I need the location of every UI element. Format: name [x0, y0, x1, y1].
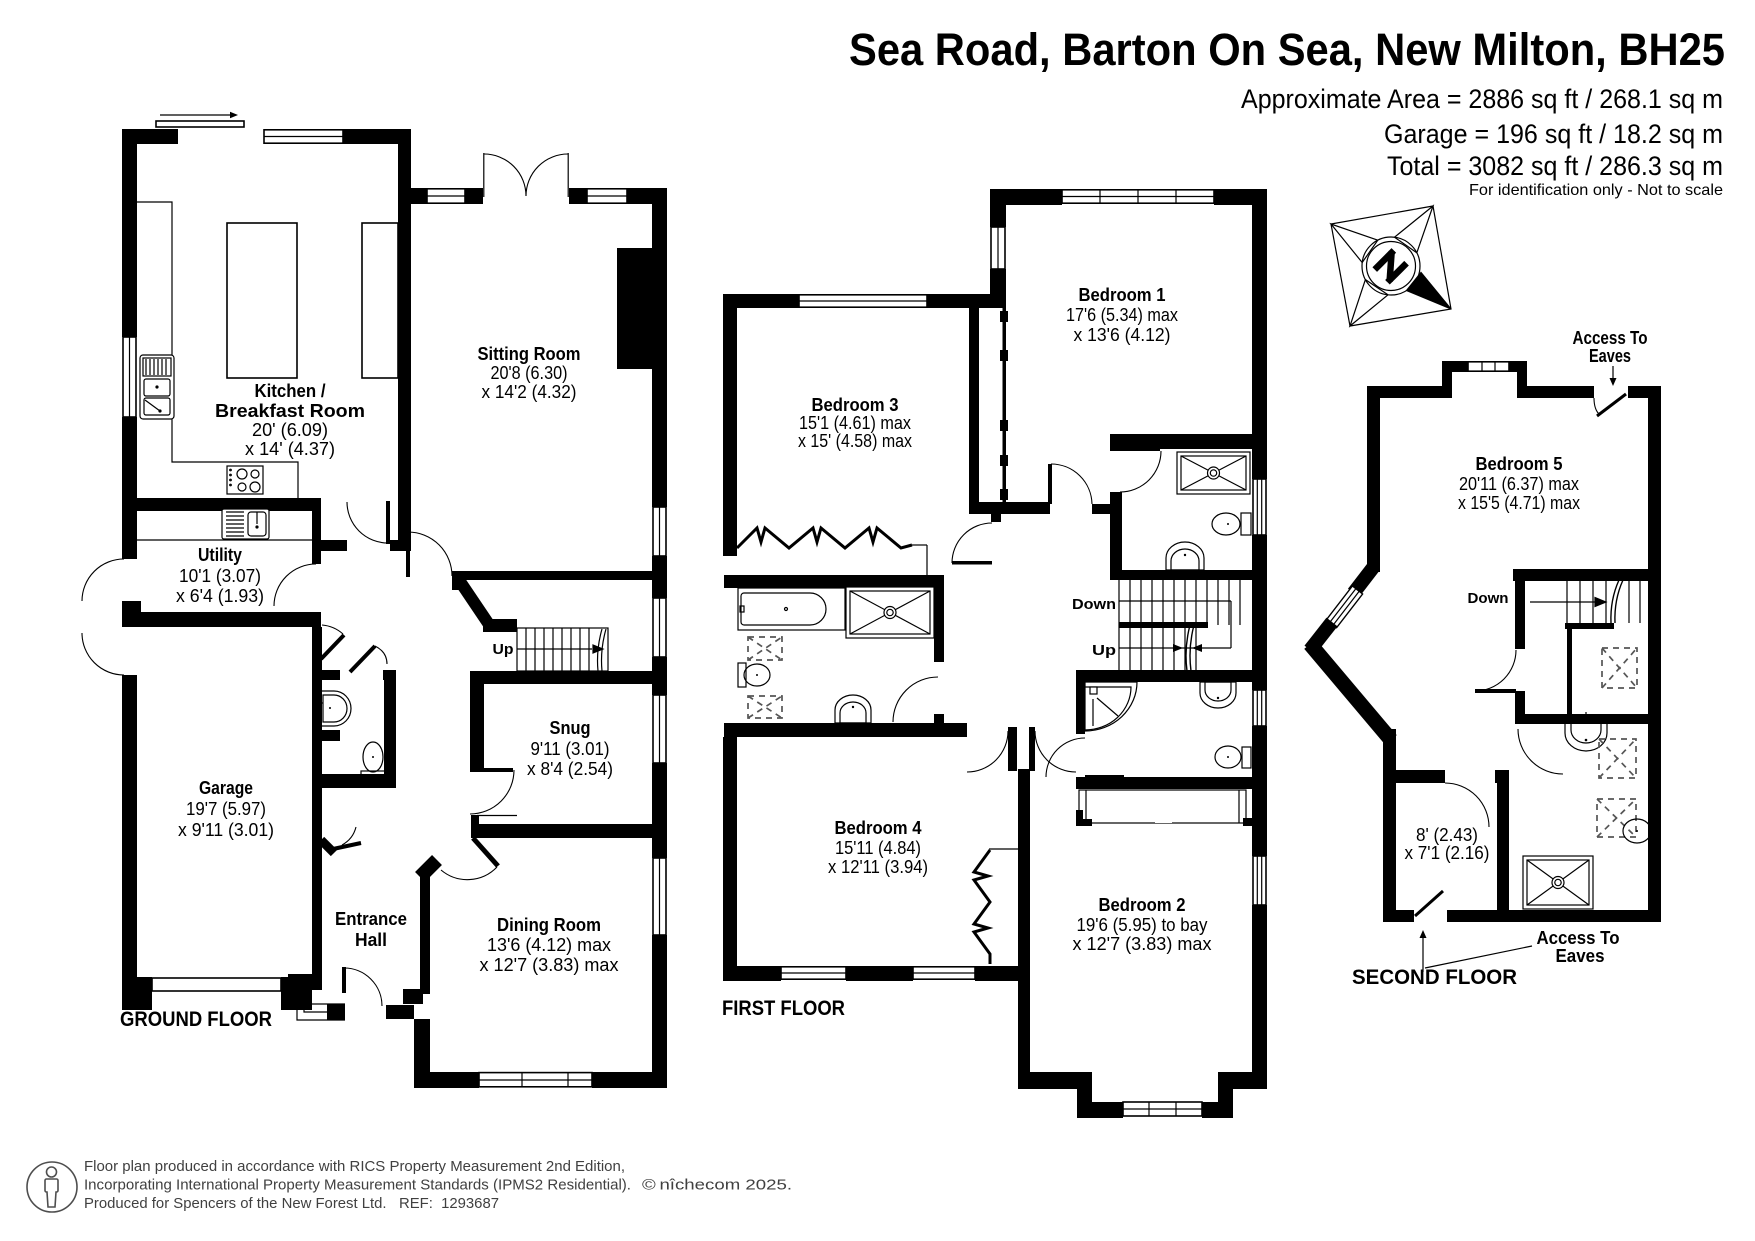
svg-text:Down: Down [1072, 596, 1116, 613]
svg-text:9'11 (3.01): 9'11 (3.01) [531, 739, 610, 759]
svg-text:17'6 (5.34) max: 17'6 (5.34) max [1066, 305, 1178, 325]
svg-text:Up: Up [493, 641, 514, 658]
svg-text:Garage = 196 sq ft / 18.2 sq m: Garage = 196 sq ft / 18.2 sq m [1384, 119, 1723, 149]
svg-text:x 6'4 (1.93): x 6'4 (1.93) [176, 586, 264, 606]
svg-text:Floor plan produced in accorda: Floor plan produced in accordance with R… [84, 1158, 625, 1175]
svg-text:For identification only - Not: For identification only - Not to scale [1469, 182, 1723, 199]
svg-text:FIRST FLOOR: FIRST FLOOR [722, 997, 845, 1020]
svg-text:Bedroom 4: Bedroom 4 [835, 818, 922, 838]
svg-text:Breakfast Room: Breakfast Room [215, 401, 365, 421]
svg-text:SECOND FLOOR: SECOND FLOOR [1352, 966, 1517, 989]
svg-text:x 12'7 (3.83) max: x 12'7 (3.83) max [480, 955, 619, 975]
svg-text:x 14'2 (4.32): x 14'2 (4.32) [482, 382, 577, 402]
svg-text:© nîchecom 2025.: © nîchecom 2025. [642, 1177, 792, 1194]
svg-text:Eaves: Eaves [1556, 946, 1605, 966]
svg-text:Incorporating International Pr: Incorporating International Property Mea… [84, 1177, 631, 1194]
svg-text:x 12'11 (3.94): x 12'11 (3.94) [828, 857, 928, 877]
svg-text:x 8'4 (2.54): x 8'4 (2.54) [527, 759, 613, 779]
svg-text:19'7 (5.97): 19'7 (5.97) [186, 799, 266, 819]
svg-text:Total = 3082 sq ft / 286.3 sq: Total = 3082 sq ft / 286.3 sq m [1387, 151, 1723, 181]
svg-text:20'8 (6.30): 20'8 (6.30) [491, 363, 568, 383]
svg-text:Bedroom 3: Bedroom 3 [812, 395, 899, 415]
svg-text:x 12'7 (3.83) max: x 12'7 (3.83) max [1073, 934, 1212, 954]
svg-text:Sea Road, Barton On Sea, New M: Sea Road, Barton On Sea, New Milton, BH2… [849, 24, 1725, 75]
svg-text:x 15'5 (4.71) max: x 15'5 (4.71) max [1458, 493, 1580, 513]
svg-text:Bedroom 1: Bedroom 1 [1079, 285, 1166, 305]
svg-text:Garage: Garage [199, 778, 253, 798]
svg-text:Snug: Snug [550, 718, 591, 738]
svg-text:Up: Up [1092, 642, 1116, 659]
svg-text:Access To: Access To [1537, 928, 1620, 948]
svg-text:15'11 (4.84): 15'11 (4.84) [835, 838, 921, 858]
svg-text:20' (6.09): 20' (6.09) [252, 420, 328, 440]
svg-text:20'11 (6.37) max: 20'11 (6.37) max [1459, 474, 1579, 494]
svg-text:x 14' (4.37): x 14' (4.37) [245, 439, 335, 459]
svg-text:Entrance: Entrance [335, 909, 407, 929]
svg-text:x 13'6 (4.12): x 13'6 (4.12) [1074, 325, 1171, 345]
svg-text:Hall: Hall [355, 930, 387, 950]
svg-text:Approximate Area = 2886 sq ft: Approximate Area = 2886 sq ft / 268.1 sq… [1241, 84, 1723, 114]
svg-text:x 7'1 (2.16): x 7'1 (2.16) [1405, 843, 1490, 863]
svg-text:Access To: Access To [1573, 328, 1648, 348]
svg-text:15'1 (4.61) max: 15'1 (4.61) max [799, 413, 911, 433]
svg-text:8' (2.43): 8' (2.43) [1416, 825, 1478, 845]
svg-text:Sitting Room: Sitting Room [478, 344, 581, 364]
svg-text:Bedroom 5: Bedroom 5 [1476, 454, 1563, 474]
svg-text:x 15' (4.58) max: x 15' (4.58) max [798, 431, 912, 451]
svg-text:Eaves: Eaves [1589, 346, 1631, 366]
svg-text:13'6 (4.12) max: 13'6 (4.12) max [487, 935, 611, 955]
svg-text:Dining Room: Dining Room [497, 915, 601, 935]
svg-text:x 9'11 (3.01): x 9'11 (3.01) [178, 820, 274, 840]
svg-text:19'6 (5.95) to bay: 19'6 (5.95) to bay [1077, 915, 1208, 935]
svg-text:GROUND FLOOR: GROUND FLOOR [120, 1008, 272, 1031]
svg-text:Down: Down [1468, 590, 1509, 607]
svg-text:10'1 (3.07): 10'1 (3.07) [179, 566, 261, 586]
svg-text:Utility: Utility [198, 545, 242, 565]
svg-text:Kitchen /: Kitchen / [255, 381, 326, 401]
svg-text:Produced for Spencers of the N: Produced for Spencers of the New Forest … [84, 1195, 499, 1212]
svg-text:Bedroom 2: Bedroom 2 [1099, 895, 1186, 915]
